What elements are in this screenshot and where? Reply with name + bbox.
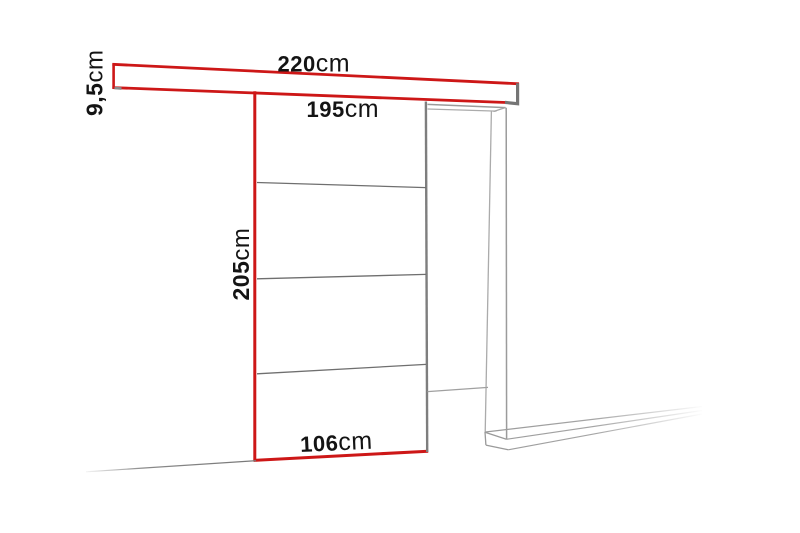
- svg-text:220cm: 220cm: [278, 50, 351, 78]
- svg-text:195cm: 195cm: [307, 95, 380, 123]
- svg-text:9,5cm: 9,5cm: [82, 50, 109, 116]
- svg-text:205cm: 205cm: [228, 228, 255, 301]
- svg-text:106cm: 106cm: [300, 427, 374, 458]
